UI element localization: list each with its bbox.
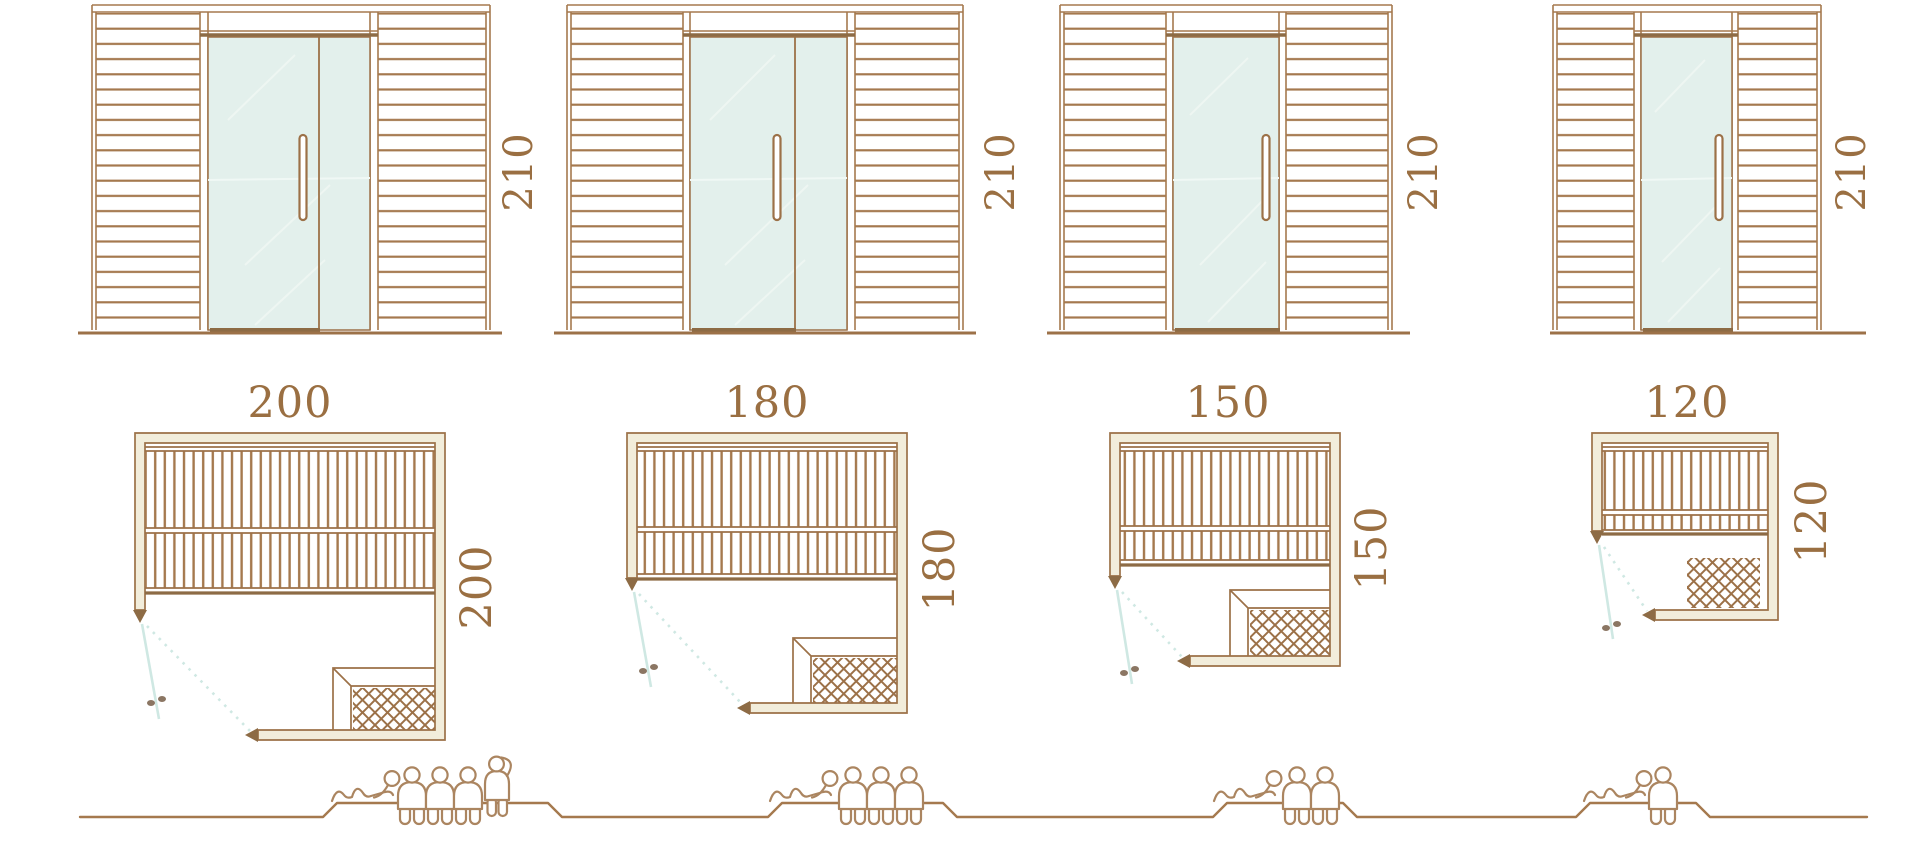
door-handle (774, 135, 781, 220)
glass-door (208, 37, 370, 330)
elevation-front-2: 210 (554, 5, 1024, 333)
elevation-front-3: 210 (1047, 5, 1447, 333)
depth-dimension-label: 150 (1347, 505, 1397, 590)
door-swing-path (1122, 592, 1182, 657)
person-seated-icon (895, 767, 923, 824)
person-lying-icon (332, 771, 399, 801)
width-dimension-label: 200 (247, 378, 332, 428)
capacity-ground-line (80, 803, 1867, 817)
door-swing-path (639, 594, 742, 704)
floor-plan-1: 200 200 (133, 378, 502, 742)
height-dimension-label: 210 (496, 132, 542, 211)
depth-dimension-label: 200 (452, 544, 502, 629)
slat-panel-left (1064, 13, 1166, 330)
door-swing (1108, 576, 1190, 684)
bench (145, 447, 435, 593)
heater-grille (353, 688, 435, 730)
wall-end-arrow (737, 701, 750, 715)
capacity-group-2 (770, 767, 923, 824)
heater (1230, 590, 1330, 656)
door-swing (1590, 531, 1655, 639)
capacity-group-3 (1214, 767, 1339, 824)
width-dimension-label: 120 (1644, 378, 1729, 428)
heater (793, 638, 897, 703)
height-dimension-label: 210 (978, 132, 1024, 211)
slat-panel-right (1738, 13, 1817, 330)
height-dimension-label: 210 (1401, 132, 1447, 211)
capacity-group-4 (1584, 767, 1677, 824)
floor-plan-2: 180 180 (625, 378, 965, 715)
heater-grille (813, 658, 897, 703)
person-seated-icon (398, 767, 426, 824)
sauna-model-3: 210 150 150 (1047, 5, 1447, 684)
door-swing-path (147, 626, 250, 731)
wall-end-arrow (245, 728, 258, 742)
elevation-front-4: 210 (1550, 5, 1875, 333)
door-swing-path (1604, 547, 1647, 611)
slat-panel-right (378, 13, 486, 330)
slat-panel-right (1286, 13, 1388, 330)
door-handle (1716, 135, 1723, 220)
capacity-group-1 (332, 757, 511, 824)
width-dimension-label: 150 (1185, 378, 1270, 428)
sauna-model-1: 210 200 200 (78, 5, 542, 742)
door-swing (625, 578, 750, 715)
floor-plan-4: 120 120 (1590, 378, 1837, 639)
person-lying-icon (1584, 771, 1651, 801)
capacity-row (80, 757, 1867, 824)
person-seated-icon (1649, 767, 1677, 824)
person-seated-icon (454, 767, 482, 824)
depth-dimension-label: 120 (1787, 478, 1837, 563)
person-seated-icon (1283, 767, 1311, 824)
bench (1120, 447, 1330, 565)
bench (1602, 447, 1768, 534)
door-handle (300, 135, 307, 220)
sauna-size-diagram: 210 200 200 (0, 0, 1920, 856)
glass-door (690, 37, 847, 330)
height-dimension-label: 210 (1829, 132, 1875, 211)
diagram-svg: 210 200 200 (0, 0, 1920, 856)
slat-panel-left (96, 13, 200, 330)
person-seated-icon (839, 767, 867, 824)
door-handle (1263, 135, 1270, 220)
person-lying-icon (770, 771, 837, 801)
slat-panel-left (571, 13, 683, 330)
elevation-front-1: 210 (78, 5, 542, 333)
heater (1687, 558, 1760, 608)
wall-end-arrow (1108, 576, 1122, 589)
heater-grille (1250, 610, 1330, 656)
bench (637, 447, 897, 579)
door-swing (133, 610, 258, 742)
slat-panel-left (1557, 13, 1634, 330)
person-seated-icon (867, 767, 895, 824)
wall-end-arrow (133, 610, 147, 623)
person-lying-icon (1214, 771, 1281, 801)
sauna-model-2: 210 180 180 (554, 5, 1024, 715)
wall-end-arrow (1590, 531, 1604, 544)
wall-end-arrow (625, 578, 639, 591)
heater (333, 668, 435, 730)
depth-dimension-label: 180 (915, 526, 965, 611)
sauna-model-4: 210 120 120 (1550, 5, 1875, 639)
heater-grille (1687, 558, 1760, 608)
wall-end-arrow (1642, 608, 1655, 622)
floor-plan-3: 150 150 (1108, 378, 1397, 684)
door-leaf (1117, 590, 1132, 684)
wall-end-arrow (1177, 654, 1190, 668)
person-seated-icon (1311, 767, 1339, 824)
width-dimension-label: 180 (724, 378, 809, 428)
door-leaf (1599, 545, 1613, 639)
slat-panel-right (855, 13, 959, 330)
person-standing-icon (485, 757, 511, 816)
person-seated-icon (426, 767, 454, 824)
